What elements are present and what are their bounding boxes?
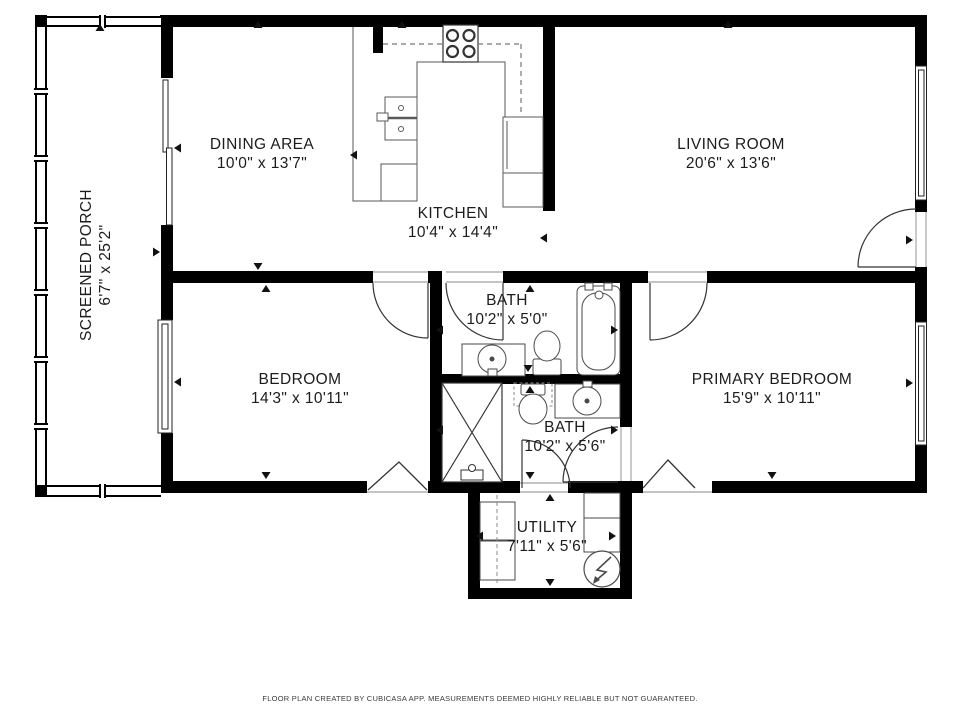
room-label-bath1: BATH 10'2" x 5'0" bbox=[466, 291, 547, 329]
room-label-living: LIVING ROOM 20'6" x 13'6" bbox=[677, 135, 785, 173]
room-label-bedroom: BEDROOM 14'3" x 10'11" bbox=[251, 370, 349, 408]
water-heater-icon bbox=[584, 551, 620, 587]
room-name: BATH bbox=[524, 418, 605, 437]
bath1-toilet-icon bbox=[533, 331, 561, 375]
window-bedroom-porch bbox=[158, 320, 172, 433]
window-living-room bbox=[916, 66, 927, 200]
room-dims: 10'2" x 5'0" bbox=[466, 310, 547, 329]
plan-symbols bbox=[0, 0, 960, 720]
utility-cabinet-icon bbox=[584, 493, 620, 552]
room-label-utility: UTILITY 7'11" x 5'6" bbox=[507, 518, 587, 556]
primary-bedroom-door bbox=[650, 283, 707, 340]
floor-plan: DINING AREA 10'0" x 13'7" KITCHEN 10'4" … bbox=[0, 0, 960, 720]
room-name: KITCHEN bbox=[408, 204, 498, 223]
room-label-porch: SCREENED PORCH 6'7" x 25'2" bbox=[77, 189, 115, 341]
bath1-sink-icon bbox=[462, 344, 525, 376]
room-name: SCREENED PORCH bbox=[77, 189, 96, 341]
stove-icon bbox=[443, 25, 478, 62]
footer-disclaimer: FLOOR PLAN CREATED BY CUBICASA APP. MEAS… bbox=[0, 694, 960, 703]
room-label-kitchen: KITCHEN 10'4" x 14'4" bbox=[408, 204, 498, 242]
room-name: UTILITY bbox=[507, 518, 587, 537]
room-label-bath2: BATH 10'2" x 5'6" bbox=[524, 418, 605, 456]
room-name: BEDROOM bbox=[251, 370, 349, 389]
sliding-door bbox=[163, 80, 172, 225]
bedroom-door bbox=[373, 283, 428, 338]
room-name: BATH bbox=[466, 291, 547, 310]
room-label-primary: PRIMARY BEDROOM 15'9" x 10'11" bbox=[692, 370, 852, 408]
room-dims: 20'6" x 13'6" bbox=[677, 154, 785, 173]
room-dims: 10'2" x 5'6" bbox=[524, 437, 605, 456]
room-dims: 7'11" x 5'6" bbox=[507, 537, 587, 556]
room-dims: 15'9" x 10'11" bbox=[692, 389, 852, 408]
room-dims: 10'0" x 13'7" bbox=[210, 154, 314, 173]
room-name: DINING AREA bbox=[210, 135, 314, 154]
room-dims: 6'7" x 25'2" bbox=[96, 189, 115, 341]
room-name: LIVING ROOM bbox=[677, 135, 785, 154]
refrigerator-icon bbox=[503, 117, 543, 207]
room-dims: 10'4" x 14'4" bbox=[408, 223, 498, 242]
bedroom-bifold-door bbox=[368, 462, 427, 490]
window-primary-bedroom bbox=[916, 322, 927, 445]
kitchen-counter bbox=[353, 27, 505, 201]
room-label-dining: DINING AREA 10'0" x 13'7" bbox=[210, 135, 314, 173]
bath2-sink-icon bbox=[555, 381, 620, 418]
room-dims: 14'3" x 10'11" bbox=[251, 389, 349, 408]
shower-icon bbox=[442, 383, 502, 482]
room-name: PRIMARY BEDROOM bbox=[692, 370, 852, 389]
cabinet-icon bbox=[381, 164, 417, 201]
primary-bifold-door bbox=[643, 460, 695, 488]
kitchen-sink-icon bbox=[377, 97, 417, 140]
